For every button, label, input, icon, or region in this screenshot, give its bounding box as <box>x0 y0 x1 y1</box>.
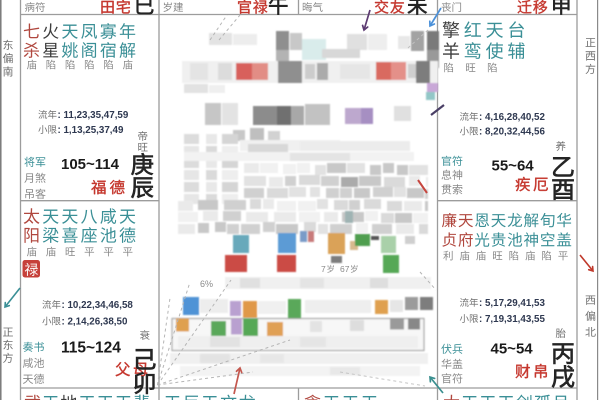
svg-text:: 2,14,26,38,50: : 2,14,26,38,50 <box>62 317 128 328</box>
svg-text:: 10,22,34,46,58: : 10,22,34,46,58 <box>62 300 134 311</box>
svg-text:45~54: 45~54 <box>491 341 534 358</box>
svg-text:: 5,17,29,41,53: : 5,17,29,41,53 <box>479 298 545 309</box>
svg-text:105~114: 105~114 <box>61 156 120 173</box>
svg-text:67: 67 <box>340 264 350 274</box>
svg-text:115~124: 115~124 <box>61 340 121 357</box>
svg-text:7: 7 <box>321 264 326 274</box>
svg-text:6%: 6% <box>200 279 213 289</box>
svg-text:: 7,19,31,43,55: : 7,19,31,43,55 <box>479 314 545 325</box>
svg-text:: 8,20,32,44,56: : 8,20,32,44,56 <box>479 127 545 138</box>
svg-text:: 11,23,35,47,59: : 11,23,35,47,59 <box>58 110 129 121</box>
svg-text:55~64: 55~64 <box>492 158 535 175</box>
svg-text:: 4,16,28,40,52: : 4,16,28,40,52 <box>479 112 545 123</box>
svg-text:: 1,13,25,37,49: : 1,13,25,37,49 <box>58 125 124 136</box>
